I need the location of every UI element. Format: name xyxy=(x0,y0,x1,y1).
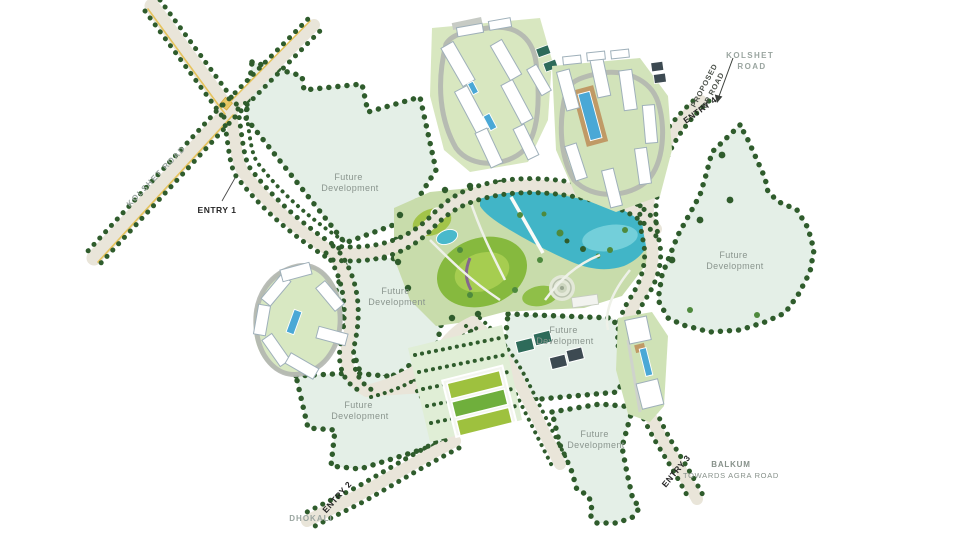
dhokali-label: DHOKALI xyxy=(289,514,332,523)
balkum-label: BALKUM xyxy=(711,460,750,469)
masterplan-map: Future Development Future Development Fu… xyxy=(0,0,957,533)
masterplan-svg: Future Development Future Development Fu… xyxy=(0,0,957,533)
kolshet-road-label-right: KOLSHET ROAD xyxy=(726,51,778,71)
kolshet-road-nw xyxy=(152,6,229,111)
future-zone-6 xyxy=(658,125,814,332)
entry1-leader-line xyxy=(222,178,235,201)
residential-cluster-3 xyxy=(245,257,351,383)
residential-cluster-1 xyxy=(430,17,558,172)
towards-agra-road-label: TOWARDS AGRA ROAD xyxy=(683,471,779,480)
entry-1-label: ENTRY 1 xyxy=(198,205,237,215)
kolshet-road-sw xyxy=(94,111,229,258)
